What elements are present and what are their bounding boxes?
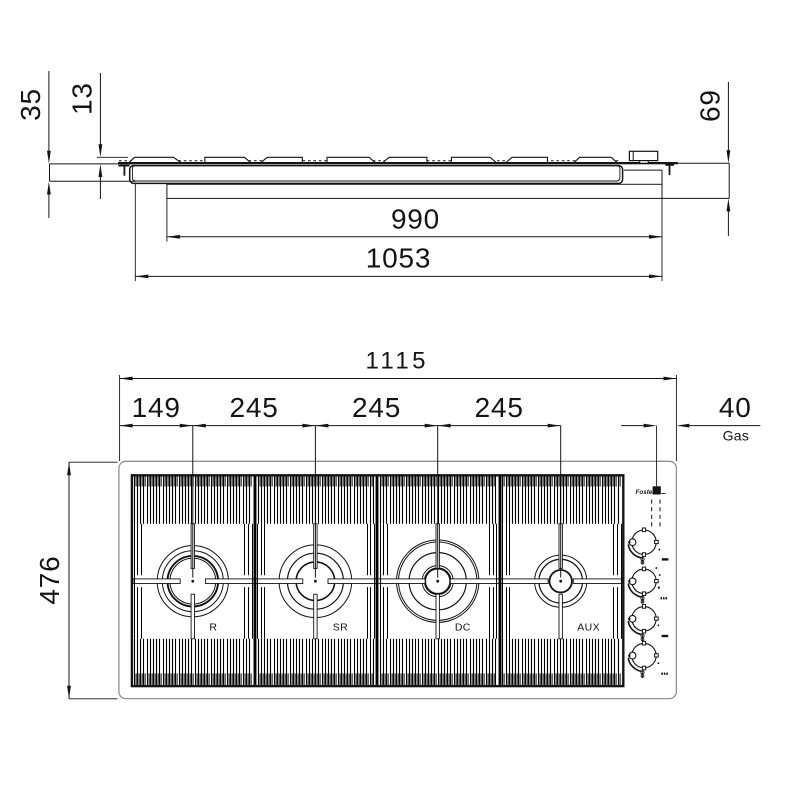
svg-text:149: 149	[132, 392, 181, 423]
svg-text:245: 245	[230, 392, 279, 423]
svg-text:13: 13	[67, 82, 98, 115]
svg-text:1053: 1053	[366, 243, 432, 274]
svg-text:245: 245	[352, 392, 401, 423]
svg-text:990: 990	[391, 204, 440, 235]
svg-text:Gas: Gas	[723, 428, 750, 444]
svg-text:35: 35	[15, 88, 46, 121]
svg-text:Foster: Foster	[636, 489, 656, 496]
svg-text:476: 476	[34, 555, 65, 604]
svg-text:R: R	[209, 622, 217, 634]
svg-text:69: 69	[695, 89, 726, 122]
svg-text:1115: 1115	[365, 347, 428, 374]
svg-text:245: 245	[475, 392, 524, 423]
svg-text:DC: DC	[455, 622, 471, 634]
svg-text:SR: SR	[333, 622, 348, 634]
svg-text:AUX: AUX	[577, 622, 600, 634]
svg-text:40: 40	[719, 392, 752, 423]
